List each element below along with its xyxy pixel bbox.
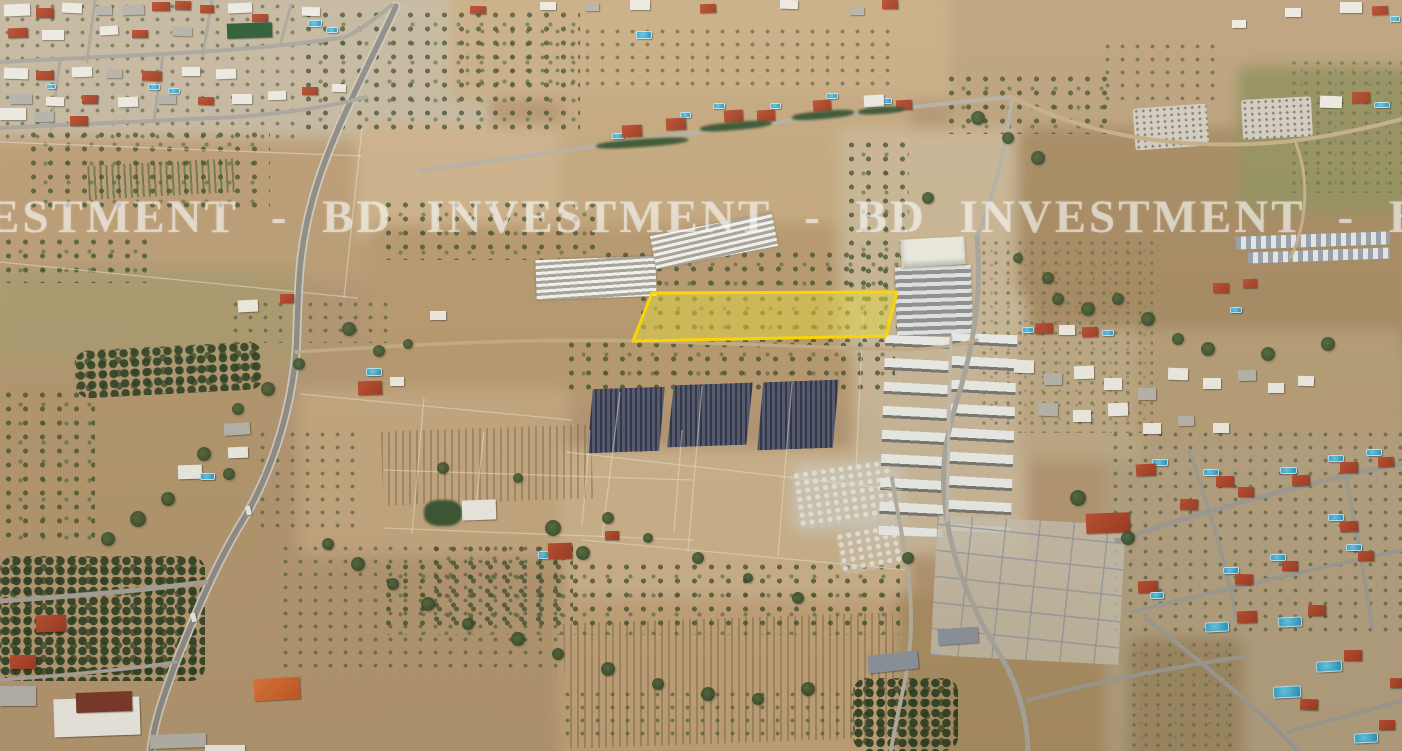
aerial-satellite-photo: ESTMENT - BD INVESTMENT - BD INVESTMENT … [0, 0, 1402, 751]
watermark-text: ESTMENT - BD INVESTMENT - BD INVESTMENT … [0, 190, 1402, 244]
highlighted-parcel [633, 292, 897, 341]
parcel-highlight-layer [0, 0, 1402, 751]
